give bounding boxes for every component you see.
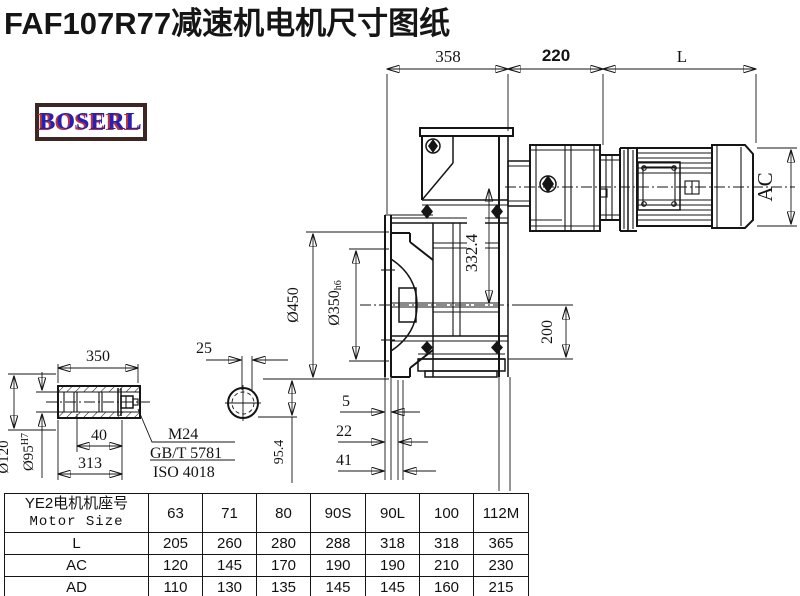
- svg-text:200: 200: [539, 320, 556, 344]
- col-100: 100: [420, 494, 474, 533]
- cell-l-80: 280: [257, 533, 311, 555]
- dim-key-width: 25: [196, 340, 288, 390]
- cell-l-90l: 318: [366, 533, 420, 555]
- cell-ac-63: 120: [149, 555, 203, 577]
- col-90s: 90S: [311, 494, 366, 533]
- svg-text:Ø450: Ø450: [285, 287, 302, 323]
- cell-ad-100: 160: [420, 577, 474, 596]
- cell-l-112m: 365: [474, 533, 529, 555]
- dim-center-height: 95.4: [258, 381, 297, 483]
- table-row-ac: AC 120 145 170 190 190 210 230: [5, 555, 529, 577]
- col-63: 63: [149, 494, 203, 533]
- cell-ad-71: 130: [203, 577, 257, 596]
- row-label-ac: AC: [5, 555, 149, 577]
- col-90l: 90L: [366, 494, 420, 533]
- cell-ac-80: 170: [257, 555, 311, 577]
- svg-text:313: 313: [78, 455, 102, 472]
- col-80: 80: [257, 494, 311, 533]
- dim-offset-mid: 22: [336, 423, 352, 440]
- dims-bottom-offsets: 5 22 41: [336, 393, 436, 471]
- drawing-page: FAF107R77减速机电机尺寸图纸 BOSERL: [0, 0, 800, 596]
- svg-text:Ø95H7: Ø95H7: [20, 433, 37, 471]
- bolt-standard-iso-label: ISO 4018: [153, 464, 215, 481]
- col-112m: 112M: [474, 494, 529, 533]
- dim-gearbox-width: 358: [435, 47, 461, 66]
- cell-ac-112m: 230: [474, 555, 529, 577]
- svg-text:Ø350h6: Ø350h6: [326, 280, 344, 326]
- row-label-ad: AD: [5, 577, 149, 596]
- cell-ac-90l: 190: [366, 555, 420, 577]
- dim-shaft-length: 350: [58, 348, 138, 383]
- cell-l-71: 260: [203, 533, 257, 555]
- dim-offset-large: 41: [336, 452, 352, 469]
- cell-ad-112m: 215: [474, 577, 529, 596]
- col-71: 71: [203, 494, 257, 533]
- gearbox-housing: [385, 128, 513, 491]
- cell-ac-71: 145: [203, 555, 257, 577]
- cell-ad-63: 110: [149, 577, 203, 596]
- bolt-standard-gb-label: GB/T 5781: [150, 445, 222, 462]
- motor-adapter: [508, 145, 620, 231]
- cell-l-100: 318: [420, 533, 474, 555]
- cell-l-90s: 288: [311, 533, 366, 555]
- center-lines: [46, 187, 795, 402]
- svg-text:40: 40: [91, 427, 107, 444]
- svg-text:25: 25: [196, 340, 212, 357]
- key-section-view: [225, 385, 261, 421]
- svg-text:AC: AC: [753, 172, 777, 201]
- cell-ac-100: 210: [420, 555, 474, 577]
- cell-l-63: 205: [149, 533, 203, 555]
- table-header-row: YE2电机机座号 Motor Size 63 71 80 90S 90L 100…: [5, 494, 529, 533]
- motor: [620, 145, 753, 231]
- cell-ac-90s: 190: [311, 555, 366, 577]
- dim-adapter-width: 220: [542, 46, 570, 65]
- dim-bore-diameter: Ø95H7: [20, 372, 58, 478]
- dim-motor-length: L: [677, 47, 687, 66]
- table-row-l: L 205 260 280 288 318 318 365: [5, 533, 529, 555]
- svg-text:350: 350: [86, 348, 110, 365]
- dim-offset-small: 5: [342, 393, 350, 410]
- fastener-callout: M24 GB/T 5781 ISO 4018: [138, 409, 235, 481]
- cell-ad-80: 135: [257, 577, 311, 596]
- cell-ad-90s: 145: [311, 577, 366, 596]
- motor-size-table: YE2电机机座号 Motor Size 63 71 80 90S 90L 100…: [4, 493, 529, 596]
- svg-text:95.4: 95.4: [272, 440, 287, 465]
- svg-text:Ø120: Ø120: [0, 440, 12, 473]
- table-header-cn: YE2电机机座号: [5, 495, 148, 514]
- table-row-ad: AD 110 130 135 145 145 160 215: [5, 577, 529, 596]
- row-label-l: L: [5, 533, 149, 555]
- dim-base-height: 200: [508, 305, 573, 359]
- dim-insert-depth: 313: [58, 420, 122, 480]
- bolt-spec-label: M24: [168, 426, 198, 443]
- svg-text:332.4: 332.4: [462, 233, 481, 272]
- table-header-motor-size: YE2电机机座号 Motor Size: [5, 494, 149, 533]
- table-header-en: Motor Size: [5, 514, 148, 532]
- cell-ad-90l: 145: [366, 577, 420, 596]
- dim-axis-distance: 332.4: [462, 189, 489, 303]
